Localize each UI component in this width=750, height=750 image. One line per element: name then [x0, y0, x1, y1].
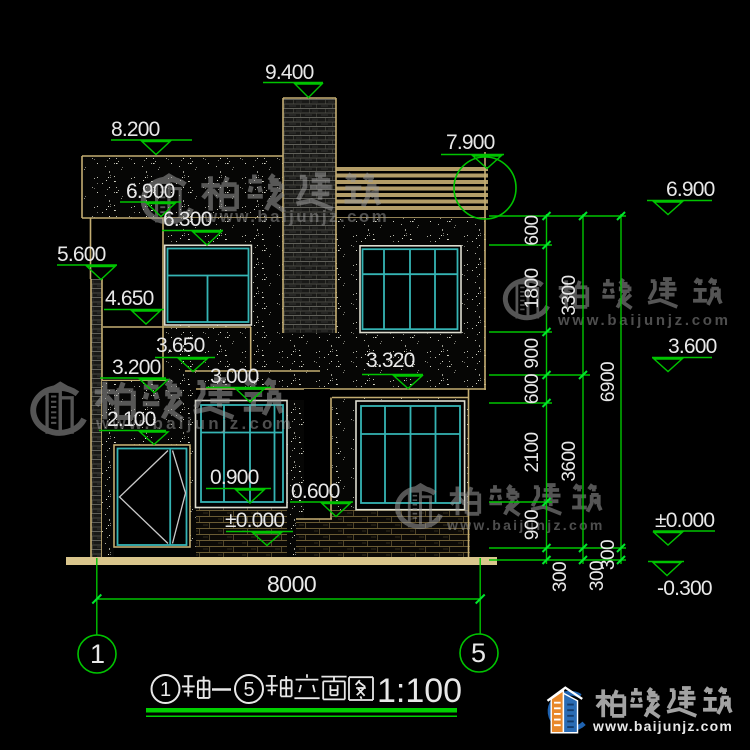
svg-text:2100: 2100 — [522, 432, 543, 472]
svg-text:6.900: 6.900 — [666, 178, 715, 201]
svg-text:±0.000: ±0.000 — [655, 509, 714, 532]
svg-text:6.900: 6.900 — [126, 180, 175, 203]
svg-text:3300: 3300 — [559, 275, 580, 315]
svg-text:1: 1 — [160, 679, 171, 701]
svg-text:5: 5 — [244, 679, 255, 701]
svg-text:8000: 8000 — [267, 571, 316, 597]
svg-text:1800: 1800 — [522, 268, 543, 308]
svg-text:9.400: 9.400 — [265, 61, 314, 84]
svg-text:300: 300 — [550, 562, 571, 592]
svg-text:±0.000: ±0.000 — [225, 509, 284, 532]
svg-text:5.600: 5.600 — [57, 243, 106, 266]
svg-text:600: 600 — [522, 374, 543, 404]
svg-text:3600: 3600 — [559, 441, 580, 481]
svg-text:900: 900 — [522, 510, 543, 540]
svg-text:6900: 6900 — [598, 362, 619, 402]
svg-text:www.baijunjz.com: www.baijunjz.com — [203, 207, 389, 226]
svg-text:1: 1 — [90, 639, 105, 669]
svg-text:3.600: 3.600 — [668, 335, 717, 358]
svg-text:8.200: 8.200 — [111, 118, 160, 141]
svg-text:6.300: 6.300 — [163, 208, 212, 231]
svg-text:3.320: 3.320 — [366, 349, 415, 372]
svg-text:300: 300 — [598, 540, 619, 570]
svg-text:1:100: 1:100 — [377, 672, 462, 710]
svg-text:900: 900 — [522, 338, 543, 368]
svg-text:3.650: 3.650 — [156, 334, 205, 357]
svg-text:0.900: 0.900 — [210, 466, 259, 489]
svg-text:-0.300: -0.300 — [657, 577, 712, 600]
svg-text:600: 600 — [522, 215, 543, 245]
svg-text:7.900: 7.900 — [446, 131, 495, 154]
svg-text:3.200: 3.200 — [112, 356, 161, 379]
svg-text:2.100: 2.100 — [107, 408, 156, 431]
svg-text:4.650: 4.650 — [105, 287, 154, 310]
svg-text:www.baijunjz.com: www.baijunjz.com — [592, 718, 733, 734]
svg-text:5: 5 — [471, 638, 486, 668]
svg-text:3.000: 3.000 — [210, 365, 259, 388]
svg-text:0.600: 0.600 — [291, 480, 340, 503]
